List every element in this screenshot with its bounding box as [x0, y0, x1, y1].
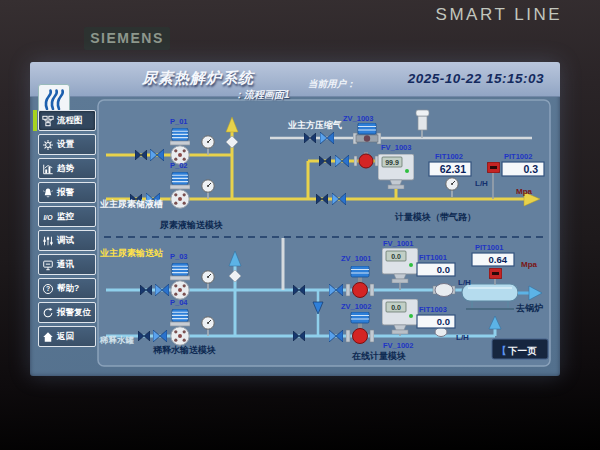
to-boiler-label: 去锅炉	[515, 303, 543, 313]
gear-icon	[42, 139, 54, 151]
pit1001-tag: PIT1001	[475, 243, 503, 252]
fit1002-value: 62.31	[440, 163, 466, 175]
urea-tank-label: 业主尿素储液槽	[99, 199, 163, 209]
process-diagram: 99.9 FIT1002 62.31 L/H PIT1002 0.3 Mpa	[92, 96, 560, 374]
smartline-label: SMART LINE	[436, 5, 562, 25]
fv1001-label: FV_1001	[383, 239, 413, 248]
comm-icon	[42, 259, 54, 271]
fit1002-tag: FIT1002	[435, 152, 463, 161]
zv1002-label: ZV_1002	[341, 302, 371, 311]
pump-p04-label: P_04	[170, 298, 188, 307]
fit1003-value: 0.0	[437, 316, 450, 327]
pit1002-value: 0.3	[523, 163, 538, 175]
sidebar-item-process-diagram[interactable]: 流程图	[38, 110, 96, 131]
sidebar-item-alarms[interactable]: 报警	[38, 182, 96, 203]
sidebar-item-communication[interactable]: 通讯	[38, 254, 96, 275]
flowmeter-value: 99.9	[385, 159, 399, 166]
header-bar: 尿素热解炉系统 ：流程画面1 当前用户： 2025-10-22 15:15:03	[30, 62, 560, 97]
svg-text:?: ?	[46, 285, 50, 292]
pit1001-value: 0.64	[489, 254, 508, 265]
next-page-button[interactable]: 【 下一页	[492, 339, 548, 359]
sidebar-item-label: 帮助?	[57, 283, 79, 295]
page-title: 尿素热解炉系统	[142, 69, 254, 88]
pump-p02-label: P_02	[170, 161, 188, 170]
sidebar-item-settings[interactable]: 设置	[38, 134, 96, 155]
fit1001-tag: FIT1001	[419, 253, 447, 262]
sidebar-item-trends[interactable]: 趋势	[38, 158, 96, 179]
small-flowmeter	[435, 328, 447, 337]
help-icon: ?	[42, 283, 54, 295]
sidebar-item-io-monitor[interactable]: I/O 监控	[38, 206, 96, 227]
zv1003-label: ZV_1003	[343, 114, 373, 123]
sidebar-item-label: 调试	[57, 235, 74, 247]
current-user-label: 当前用户：	[308, 78, 356, 91]
zv1001-label: ZV_1001	[341, 254, 371, 263]
trend-icon	[42, 163, 54, 175]
sliders-icon	[42, 235, 54, 247]
water-tank-label: 稀释水罐	[99, 335, 135, 345]
datetime: 2025-10-22 15:15:03	[408, 71, 544, 86]
compressed-air-label: 业主方压缩气	[287, 120, 342, 130]
svg-text:I/O: I/O	[43, 213, 53, 220]
active-indicator	[33, 110, 37, 131]
hmi-screen: 尿素热解炉系统 ：流程画面1 当前用户： 2025-10-22 15:15:03…	[30, 62, 560, 376]
sidebar-item-debug[interactable]: 调试	[38, 230, 96, 251]
flow-diagram-icon	[42, 115, 54, 127]
fit1002-unit: L/H	[475, 179, 488, 188]
metering-module-label: 计量模块（带气路）	[394, 212, 476, 222]
sidebar-item-label: 设置	[57, 139, 74, 151]
sidebar-item-label: 通讯	[57, 259, 74, 271]
pit1002-unit: Mpa	[516, 187, 533, 196]
waves-icon	[42, 88, 66, 112]
fit1003-unit: L/H	[456, 333, 469, 342]
home-icon	[42, 331, 54, 343]
fv1002-value: 0.0	[391, 304, 401, 311]
hmi-panel-photo: SIEMENS SMART LINE 尿素热解炉系统 ：流程画面1 当前用户： …	[0, 0, 600, 450]
fit1003-tag: FIT1003	[419, 305, 447, 314]
page-subtitle: ：流程画面1	[234, 88, 290, 102]
next-page-bracket: 【	[497, 345, 507, 356]
pump-p01-label: P_01	[170, 117, 188, 126]
fit1001-unit: L/H	[458, 278, 471, 287]
sidebar-menu: 流程图 设置 趋势 报警 I/O 监控 调试	[38, 110, 98, 347]
alarm-bell-icon	[42, 187, 54, 199]
online-metering-label: 在线计量模块	[351, 351, 406, 361]
sidebar-item-alarm-reset[interactable]: 报警复位	[38, 302, 96, 323]
water-module-label: 稀释水输送模块	[152, 345, 216, 355]
sidebar-item-label: 趋势	[57, 163, 74, 175]
sidebar-item-label: 返回	[57, 331, 74, 343]
fv1003-label: FV_1003	[381, 143, 411, 152]
sidebar-item-label: 报警	[57, 187, 74, 199]
alarm-reset-icon	[42, 307, 54, 319]
sidebar-item-back[interactable]: 返回	[38, 326, 96, 347]
urea-module-label: 尿素液输送模块	[159, 220, 223, 230]
siemens-logo: SIEMENS	[84, 27, 170, 50]
sidebar-item-label: 流程图	[57, 115, 83, 127]
pump-p03-label: P_03	[170, 252, 188, 261]
pit1001-unit: Mpa	[521, 260, 538, 269]
sidebar-item-help[interactable]: ? 帮助?	[38, 278, 96, 299]
fit1001-value: 0.0	[437, 264, 450, 275]
sidebar-item-label: 报警复位	[57, 307, 91, 319]
next-page-label: 下一页	[507, 345, 537, 356]
urea-station-label: 业主尿素输送站	[99, 248, 163, 258]
io-icon: I/O	[42, 211, 54, 223]
fv1002-label: FV_1002	[383, 341, 413, 350]
sidebar-item-label: 监控	[57, 211, 74, 223]
pit1002-tag: PIT1002	[504, 152, 532, 161]
fv1001-value: 0.0	[391, 253, 401, 260]
